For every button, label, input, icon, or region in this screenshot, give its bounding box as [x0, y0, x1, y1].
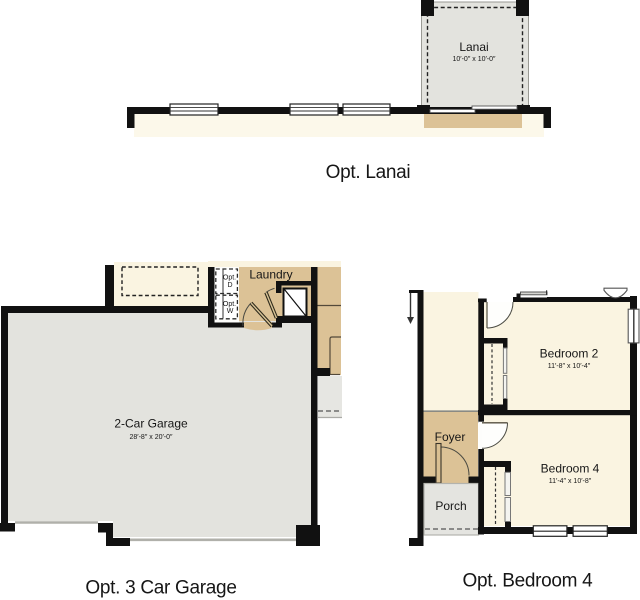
svg-text:Foyer: Foyer [435, 430, 466, 444]
svg-text:11′-8″ x 10′-4″: 11′-8″ x 10′-4″ [548, 363, 591, 370]
svg-text:Bedroom 4: Bedroom 4 [541, 462, 600, 476]
svg-text:Opt.: Opt. [223, 275, 236, 282]
svg-text:Opt. 3 Car Garage: Opt. 3 Car Garage [85, 578, 236, 599]
svg-text:10′-0″ x 10′-0″: 10′-0″ x 10′-0″ [453, 56, 497, 63]
svg-text:D: D [227, 282, 232, 289]
svg-text:Opt. Lanai: Opt. Lanai [326, 162, 411, 183]
svg-text:Opt. Bedroom 4: Opt. Bedroom 4 [463, 571, 594, 592]
svg-text:Bedroom 2: Bedroom 2 [540, 347, 599, 361]
svg-text:Opt.: Opt. [223, 301, 236, 308]
svg-text:Lanai: Lanai [459, 40, 488, 54]
svg-text:2-Car Garage: 2-Car Garage [114, 417, 188, 431]
svg-text:Laundry: Laundry [249, 268, 292, 282]
svg-text:28′-8″ x 20′-0″: 28′-8″ x 20′-0″ [130, 434, 174, 441]
svg-text:Porch: Porch [435, 499, 466, 513]
svg-text:11′-4″ x 10′-8″: 11′-4″ x 10′-8″ [549, 478, 592, 485]
svg-text:W: W [227, 308, 234, 315]
